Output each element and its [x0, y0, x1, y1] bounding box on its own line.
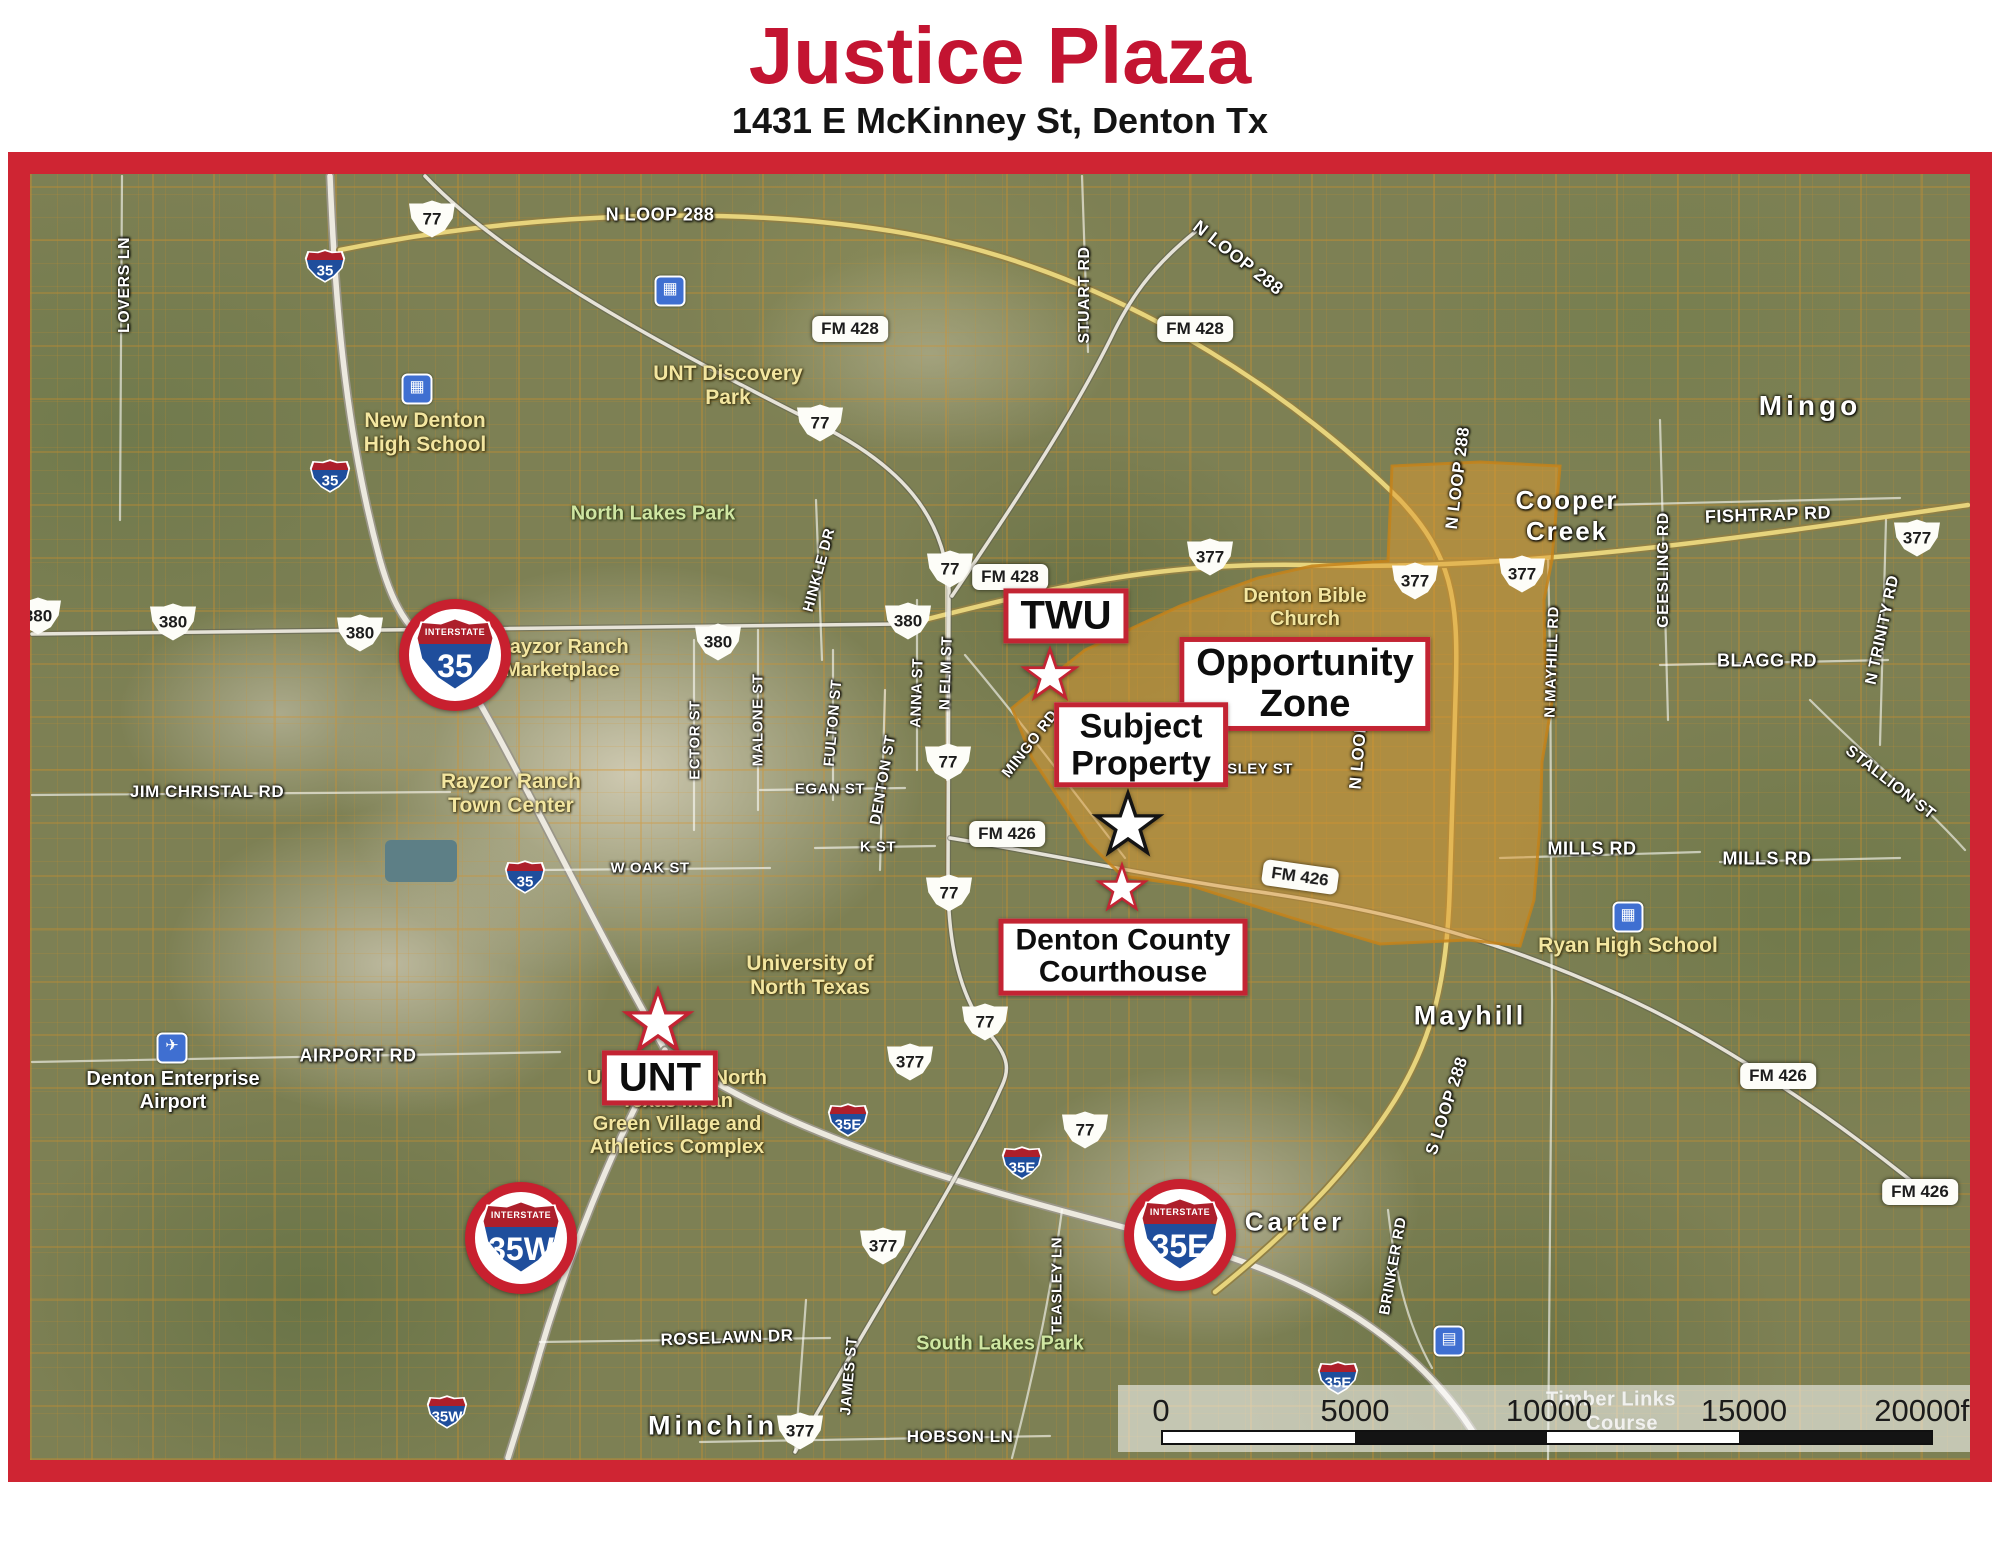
place-label-mingo: Mingo [1759, 390, 1861, 422]
road-label-lovers-ln: LOVERS LN [116, 237, 134, 333]
scale-tick-10000: 10000 [1506, 1393, 1592, 1429]
road-label-roselawn-dr: ROSELAWN DR [660, 1326, 794, 1351]
us-route-shield-77: 77 [1062, 1112, 1108, 1149]
school-icon: ▦ [402, 374, 433, 405]
road-label-ector-st: ECTOR ST [687, 700, 704, 780]
place-label-carter: Carter [1245, 1207, 1346, 1238]
us-route-shield-377: 377 [777, 1413, 823, 1450]
road-label-s-loop-288: S LOOP 288 [1422, 1054, 1473, 1157]
us-route-shield-380: 380 [885, 603, 931, 640]
fm-shield-fm-426: FM 426 [1740, 1063, 1816, 1089]
courthouse-star [1094, 861, 1150, 917]
callout-twu: TWU [1003, 588, 1128, 643]
scale-bar: 05000100001500020000ft [1118, 1385, 1970, 1452]
road-label-mills-rd: MILLS RD [1723, 849, 1812, 870]
interstate-shield-35W: 35W [426, 1395, 468, 1430]
road-label-airport-rd: AIRPORT RD [300, 1046, 417, 1067]
fm-shield-fm-426: FM 426 [1261, 859, 1340, 895]
poi-label-denton-enterprise: Denton EnterpriseAirport [86, 1068, 259, 1114]
us-route-shield-77: 77 [925, 744, 971, 781]
interstate-badge-35: INTERSTATE35 [399, 599, 511, 711]
road-label-james-st: JAMES ST [837, 1336, 861, 1416]
poi-label-new-denton: New DentonHigh School [364, 409, 487, 457]
fm-shield-fm-428: FM 428 [1157, 316, 1233, 342]
flyer-page: Justice Plaza 1431 E McKinney St, Denton… [0, 0, 2000, 1545]
us-route-shield-377: 377 [1499, 556, 1545, 593]
road-label-jim-christal-rd: JIM CHRISTAL RD [130, 782, 284, 802]
us-route-shield-380: 380 [150, 604, 196, 641]
interstate-shield-35: 35 [309, 459, 351, 494]
road-label-k-st: K ST [860, 839, 896, 856]
interstate-shield-35E: 35E [827, 1103, 869, 1138]
fm-shield-fm-426: FM 426 [969, 821, 1045, 847]
poi-label-south-lakes-park: South Lakes Park [916, 1333, 1084, 1356]
road-label-blagg-rd: BLAGG RD [1717, 651, 1817, 672]
road-label-n-mayhill-rd: N MAYHILL RD [1542, 606, 1563, 718]
us-route-shield-377: 377 [1392, 563, 1438, 600]
map: N LOOP 288N LOOP 288N LOOP 288N LOOP 288… [8, 152, 1992, 1482]
road-label-mingo-rd: MINGO RD [998, 707, 1061, 781]
scale-tick-20000ft: 20000ft [1874, 1393, 1977, 1429]
page-subtitle: 1431 E McKinney St, Denton Tx [0, 100, 2000, 142]
road-label-hobson-ln: HOBSON LN [907, 1427, 1014, 1447]
school-icon: ▦ [655, 276, 686, 307]
airport-icon: ✈ [157, 1033, 188, 1064]
poi-label-cooper: CooperCreek [1516, 485, 1619, 547]
road-label-fishtrap-rd: FISHTRAP RD [1705, 502, 1832, 527]
us-route-shield-377: 377 [887, 1044, 933, 1081]
rest-area-icon: ▤ [1434, 1326, 1465, 1357]
poi-label-north-lakes-park: North Lakes Park [571, 503, 736, 526]
poi-label-university-of: University ofNorth Texas [746, 952, 873, 1000]
callout-subject-property: SubjectProperty [1054, 702, 1228, 787]
place-label-mayhill: Mayhill [1414, 1001, 1527, 1032]
poi-label-denton-bible: Denton BibleChurch [1243, 585, 1366, 631]
place-label-minchin: Minchin [648, 1411, 778, 1442]
callout-unt: UNT [602, 1050, 718, 1105]
road-label-stuart-rd: STUART RD [1076, 247, 1094, 344]
interstate-badge-35W: INTERSTATE35W [465, 1182, 577, 1294]
us-route-shield-77: 77 [962, 1004, 1008, 1041]
us-route-shield-77: 77 [797, 405, 843, 442]
scale-tick-0: 0 [1152, 1393, 1169, 1429]
road-label-n-loop-288: N LOOP 288 [1189, 216, 1288, 299]
road-label-fulton-st: FULTON ST [821, 679, 846, 767]
page-title: Justice Plaza [0, 10, 2000, 102]
map-labels-layer: N LOOP 288N LOOP 288N LOOP 288N LOOP 288… [8, 152, 1992, 1482]
us-route-shield-77: 77 [927, 551, 973, 588]
twu-star [1019, 645, 1081, 707]
us-route-shield-377: 377 [1187, 539, 1233, 576]
road-label-geesling-rd: GEESLING RD [1655, 512, 1673, 628]
interstate-badge-35E: INTERSTATE35E [1124, 1179, 1236, 1291]
fm-shield-fm-428: FM 428 [972, 564, 1048, 590]
road-label-denton-st: DENTON ST [867, 734, 900, 826]
scale-tick-15000: 15000 [1701, 1393, 1787, 1429]
road-label-n-elm-st: N ELM ST [936, 636, 956, 711]
road-label-n-loop-288: N LOOP 288 [1442, 426, 1474, 531]
subject-property-star [1090, 788, 1166, 864]
us-route-shield-380: 380 [695, 624, 741, 661]
school-icon: ▦ [1613, 902, 1644, 933]
interstate-shield-35E: 35E [1001, 1146, 1043, 1181]
road-label-stallion-st: STALLION ST [1841, 742, 1938, 823]
road-label-n-trinity-rd: N TRINITY RD [1863, 574, 1904, 687]
scale-segments [1161, 1430, 1933, 1445]
us-route-shield-380: 380 [15, 598, 61, 635]
road-label-w-oak-st: W OAK ST [611, 860, 690, 877]
us-route-shield-77: 77 [926, 875, 972, 912]
road-label-egan-st: EGAN ST [795, 781, 865, 798]
poi-label-unt-discovery: UNT DiscoveryPark [653, 362, 802, 410]
us-route-shield-380: 380 [337, 615, 383, 652]
road-label-mills-rd: MILLS RD [1548, 839, 1637, 860]
us-route-shield-377: 377 [1894, 520, 1940, 557]
scale-tick-5000: 5000 [1321, 1393, 1390, 1429]
fm-shield-fm-428: FM 428 [812, 316, 888, 342]
road-label-hinkle-dr: HINKLE DR [800, 526, 839, 614]
us-route-shield-377: 377 [860, 1228, 906, 1265]
poi-label-rayzor-ranch: Rayzor RanchTown Center [441, 770, 581, 818]
fm-shield-fm-426: FM 426 [1882, 1179, 1958, 1205]
road-label-malone-st: MALONE ST [750, 674, 767, 767]
poi-label-ryan-high-school: Ryan High School [1538, 934, 1718, 958]
callout-denton-county-courthouse: Denton CountyCourthouse [999, 919, 1248, 996]
road-label-anna-st: ANNA ST [907, 658, 926, 728]
interstate-shield-35: 35 [504, 860, 546, 895]
interstate-shield-35: 35 [304, 249, 346, 284]
road-label-brinker-rd: BRINKER RD [1376, 1216, 1410, 1317]
us-route-shield-77: 77 [409, 201, 455, 238]
poi-label-rayzor-ranch: Rayzor RanchMarketplace [495, 636, 628, 682]
road-label-teasley-ln: TEASLEY LN [1049, 1237, 1066, 1335]
road-label-n-loop-288: N LOOP 288 [606, 205, 715, 226]
